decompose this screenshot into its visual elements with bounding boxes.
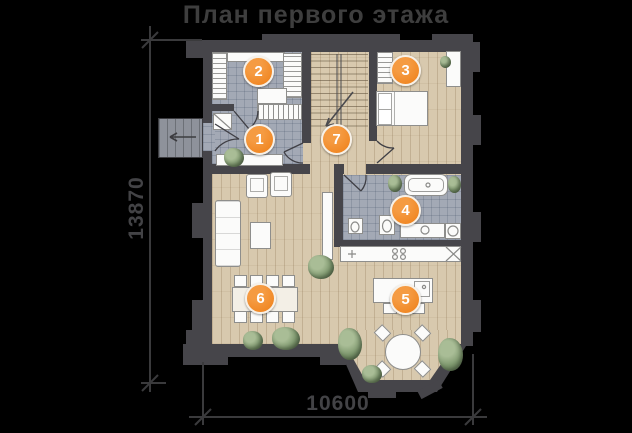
room-marker-4: 4 (390, 195, 421, 226)
room-marker-3: 3 (390, 55, 421, 86)
dimension-label-horizontal: 10600 (278, 392, 398, 414)
page-title: План первого этажа (0, 1, 632, 30)
door-swings (215, 111, 394, 191)
entrance-arrow (170, 133, 196, 141)
room-marker-2: 2 (243, 56, 274, 87)
room-marker-label: 4 (401, 202, 409, 219)
room-marker-5: 5 (390, 284, 421, 315)
room-marker-label: 1 (255, 131, 263, 148)
floor-plan-canvas: План первого этажа (0, 0, 632, 433)
room-marker-label: 3 (401, 62, 409, 79)
room-marker-label: 6 (256, 290, 264, 307)
dimension-label-vertical: 13870 (125, 163, 147, 253)
room-marker-label: 7 (332, 131, 340, 148)
room-marker-7: 7 (321, 124, 352, 155)
annotation-overlay (0, 0, 632, 433)
room-marker-label: 5 (401, 291, 409, 308)
room-marker-6: 6 (245, 283, 276, 314)
dimension-lines (141, 26, 487, 425)
stairs-direction-arrow (326, 54, 353, 131)
room-marker-1: 1 (244, 124, 275, 155)
room-marker-label: 2 (254, 63, 262, 80)
